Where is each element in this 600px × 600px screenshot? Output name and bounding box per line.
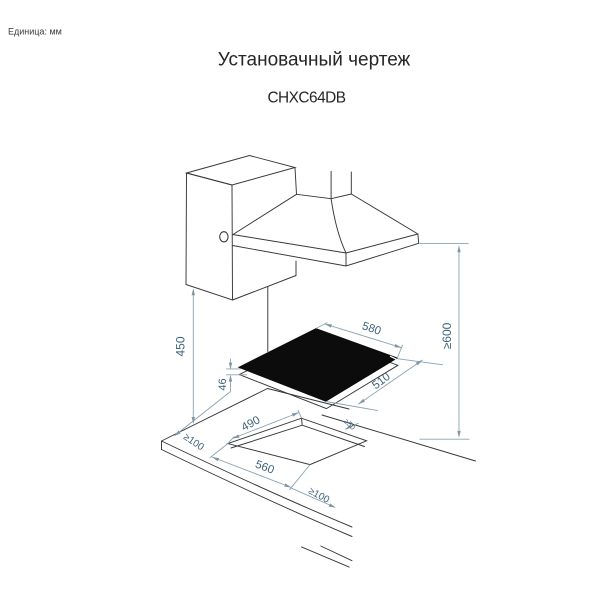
svg-text:580: 580 bbox=[360, 320, 382, 337]
svg-text:46: 46 bbox=[217, 378, 229, 390]
svg-text:≥100: ≥100 bbox=[306, 486, 331, 506]
svg-text:≥600: ≥600 bbox=[440, 322, 454, 349]
svg-text:Единица: мм: Единица: мм bbox=[8, 27, 62, 37]
svg-text:450: 450 bbox=[174, 336, 188, 356]
svg-text:CHXC64DB: CHXC64DB bbox=[267, 90, 345, 107]
svg-text:Установачный чертеж: Установачный чертеж bbox=[218, 49, 411, 70]
svg-text:≥50: ≥50 bbox=[342, 417, 357, 432]
svg-text:≥100: ≥100 bbox=[181, 432, 206, 454]
